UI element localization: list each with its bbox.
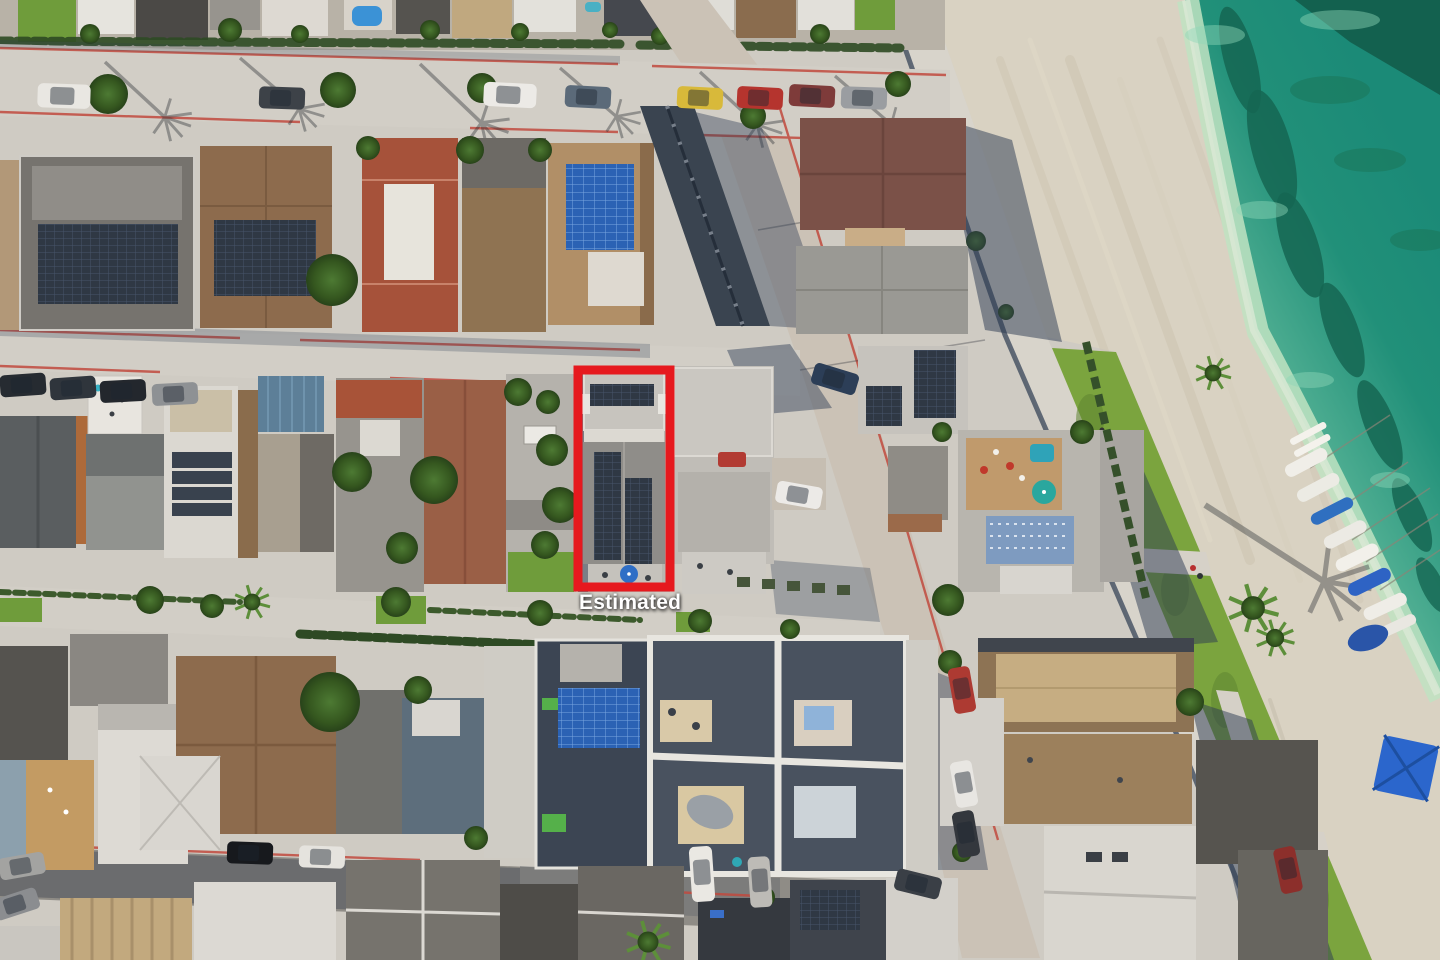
solar-array — [590, 384, 654, 406]
parked-car — [227, 841, 274, 865]
swimming-pool — [352, 6, 382, 26]
parked-car-yellow — [676, 86, 723, 110]
building-blue-metal — [258, 376, 324, 432]
building-roof — [500, 884, 580, 960]
building-maroon-hip — [800, 118, 966, 230]
beach-tent — [1373, 735, 1439, 801]
parked-van — [483, 82, 537, 109]
aerial-photo: Estimated — [0, 0, 1440, 960]
spa — [1030, 444, 1054, 462]
solar-array — [38, 224, 178, 304]
subject-property — [578, 368, 670, 592]
building-gray-gable — [86, 434, 164, 550]
building-roof — [194, 882, 336, 960]
building-roof — [698, 898, 790, 960]
balcony-strip — [238, 390, 258, 558]
parked-van — [37, 83, 91, 109]
red-vehicle — [718, 452, 746, 467]
solar-array — [172, 487, 232, 500]
building-modern-solar — [536, 640, 650, 868]
building-roof — [70, 634, 168, 706]
building-solar — [790, 880, 886, 960]
alley — [484, 646, 538, 858]
building-gray-gable — [346, 860, 500, 960]
building-flat-solar — [20, 156, 194, 330]
parked-car-red — [736, 86, 783, 110]
solar-array — [172, 503, 232, 516]
building-tan — [258, 434, 334, 552]
parked-car-white — [299, 845, 346, 869]
parked-car — [99, 379, 146, 403]
building-dark-gable — [0, 416, 76, 548]
parked-car — [841, 86, 888, 110]
building-tan-solar — [548, 143, 654, 325]
parked-van — [689, 846, 716, 903]
solar-array-blue — [558, 688, 640, 748]
building-red-tile — [362, 138, 458, 332]
parked-car — [0, 372, 47, 397]
building-roof — [0, 646, 68, 760]
solar-array — [800, 890, 860, 930]
building-neighbor — [672, 366, 774, 594]
building-pergola — [60, 898, 192, 960]
building-bluegray — [402, 698, 486, 834]
building-roof — [1196, 740, 1318, 864]
building-white-hip — [140, 756, 220, 850]
estimated-label: Estimated — [579, 591, 681, 615]
top-backyards — [0, 0, 945, 50]
building-white-gable — [1044, 826, 1196, 960]
lawn — [855, 0, 895, 30]
block-row1 — [0, 106, 968, 334]
lawn — [18, 0, 76, 42]
parked-van — [747, 856, 772, 908]
building-modern-quad — [650, 638, 906, 874]
solar-array — [214, 220, 316, 296]
parked-suv — [788, 84, 835, 108]
solar-array-blue — [566, 164, 634, 250]
block-row2 — [0, 342, 1146, 598]
solar-array — [625, 478, 652, 564]
aerial-scene — [0, 0, 1440, 960]
solar-array — [866, 386, 902, 426]
solar-array — [594, 452, 621, 560]
parked-car — [151, 382, 198, 406]
solar-array — [172, 471, 232, 484]
building-roof — [462, 138, 546, 332]
spa — [585, 2, 601, 12]
solar-array — [914, 350, 956, 418]
lawn — [0, 598, 42, 622]
spa — [732, 857, 742, 867]
building-brown-hip — [200, 146, 332, 328]
building-white-solar — [164, 386, 238, 558]
building-tan-gable — [0, 760, 94, 870]
sidewalk — [906, 640, 938, 872]
parked-car — [49, 375, 96, 400]
solar-array — [172, 452, 232, 468]
parked-car — [564, 85, 611, 109]
parked-car — [259, 86, 306, 110]
